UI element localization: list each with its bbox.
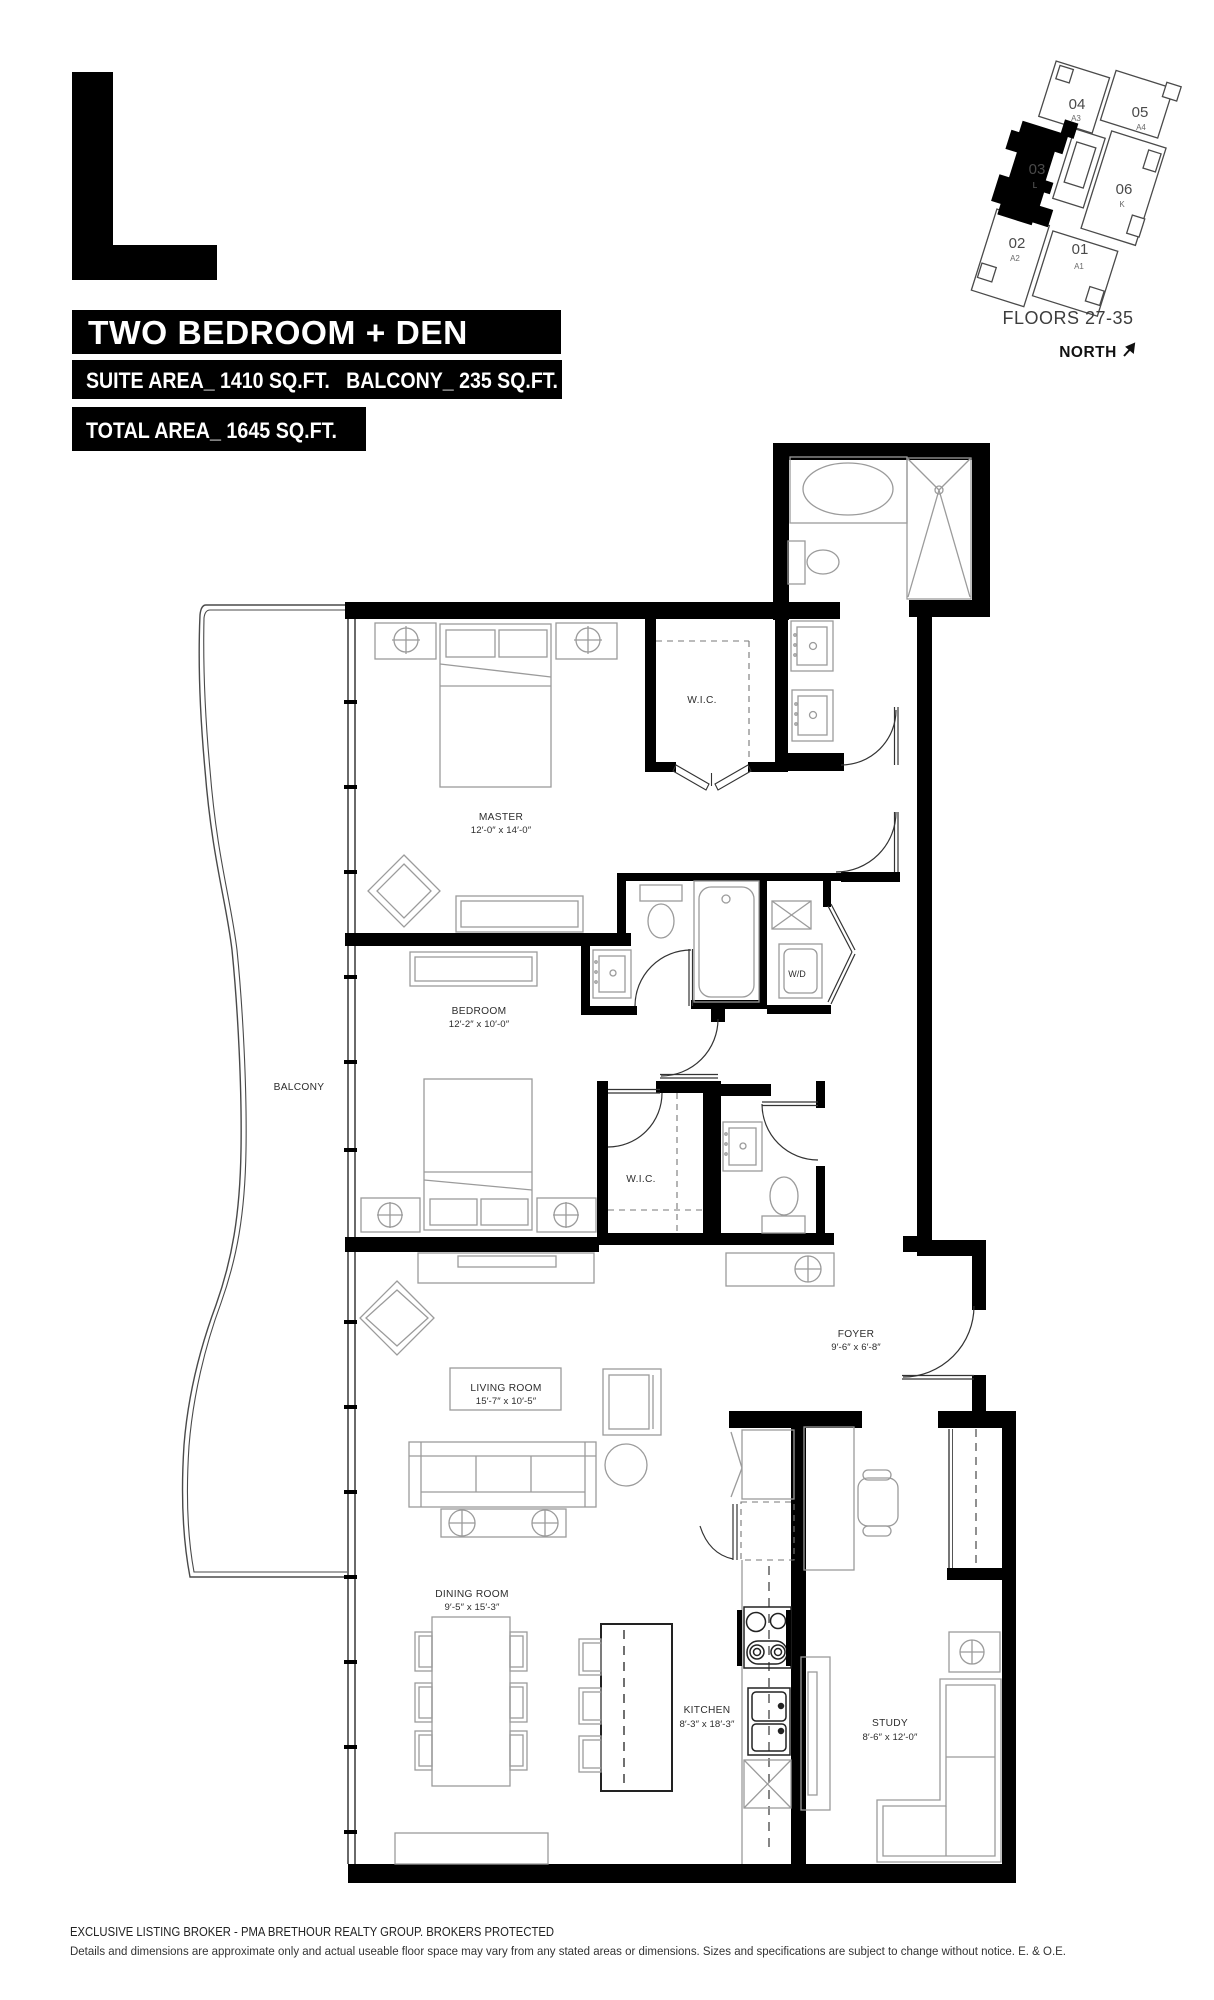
svg-text:12′-2″ x 10′-0″: 12′-2″ x 10′-0″ xyxy=(449,1019,510,1030)
svg-text:A2: A2 xyxy=(1010,254,1020,263)
svg-text:9′-6″ x 6′-8″: 9′-6″ x 6′-8″ xyxy=(831,1342,881,1353)
svg-text:W.I.C.: W.I.C. xyxy=(626,1174,656,1185)
svg-text:A4: A4 xyxy=(1136,123,1146,132)
svg-text:8′-6″ x 12′-0″: 8′-6″ x 12′-0″ xyxy=(863,1732,918,1743)
svg-text:05: 05 xyxy=(1132,104,1149,121)
svg-text:DINING ROOM: DINING ROOM xyxy=(435,1589,508,1600)
svg-text:Details and dimensions are app: Details and dimensions are approximate o… xyxy=(70,1944,1066,1958)
svg-text:MASTER: MASTER xyxy=(479,812,523,823)
svg-text:BEDROOM: BEDROOM xyxy=(452,1006,507,1017)
svg-text:15′-7″ x 10′-5″: 15′-7″ x 10′-5″ xyxy=(476,1396,537,1407)
svg-text:SUITE AREA_ 1410 SQ.FT. BALC: SUITE AREA_ 1410 SQ.FT. BALCONY_ 235 SQ.… xyxy=(86,368,558,393)
svg-text:FOYER: FOYER xyxy=(838,1329,875,1340)
svg-text:04: 04 xyxy=(1069,96,1086,113)
svg-text:9′-5″ x 15′-3″: 9′-5″ x 15′-3″ xyxy=(445,1602,500,1613)
svg-text:12′-0″ x 14′-0″: 12′-0″ x 14′-0″ xyxy=(471,825,532,836)
svg-text:01: 01 xyxy=(1072,241,1089,258)
svg-text:L: L xyxy=(1033,181,1038,190)
svg-text:STUDY: STUDY xyxy=(872,1718,908,1729)
svg-text:LIVING ROOM: LIVING ROOM xyxy=(470,1383,541,1394)
svg-text:TOTAL AREA_ 1645 SQ.FT.: TOTAL AREA_ 1645 SQ.FT. xyxy=(86,418,337,443)
svg-text:06: 06 xyxy=(1116,181,1133,198)
svg-text:A3: A3 xyxy=(1071,114,1081,123)
svg-text:EXCLUSIVE LISTING BROKER - PMA: EXCLUSIVE LISTING BROKER - PMA BRETHOUR … xyxy=(70,1925,554,1939)
svg-text:A1: A1 xyxy=(1074,262,1084,271)
svg-text:K: K xyxy=(1119,200,1125,209)
svg-text:TWO BEDROOM + DEN: TWO BEDROOM + DEN xyxy=(88,315,468,352)
svg-text:FLOORS 27-35: FLOORS 27-35 xyxy=(1002,308,1133,328)
svg-text:03: 03 xyxy=(1029,161,1046,178)
svg-text:W/D: W/D xyxy=(788,969,806,979)
svg-text:NORTH: NORTH xyxy=(1059,344,1117,361)
svg-text:8′-3″ x 18′-3″: 8′-3″ x 18′-3″ xyxy=(680,1719,735,1730)
svg-text:KITCHEN: KITCHEN xyxy=(684,1705,731,1716)
svg-text:W.I.C.: W.I.C. xyxy=(687,695,717,706)
svg-text:BALCONY: BALCONY xyxy=(274,1082,325,1093)
svg-text:02: 02 xyxy=(1009,235,1026,252)
